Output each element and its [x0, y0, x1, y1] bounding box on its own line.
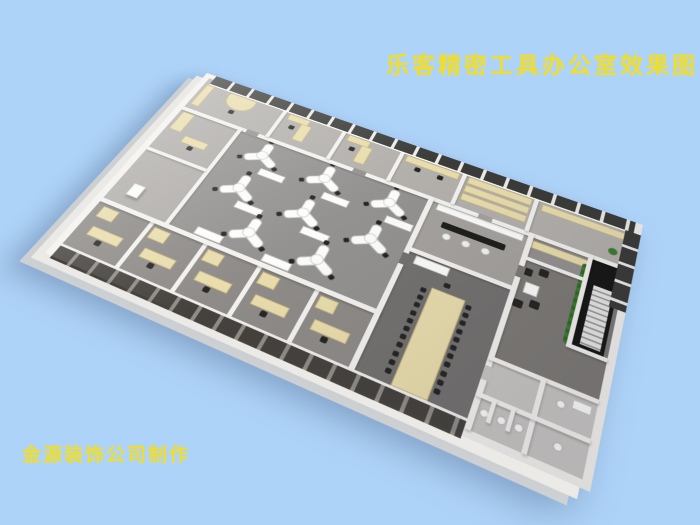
desk-chair: [289, 259, 295, 264]
desk-chair: [221, 232, 227, 237]
desk-chair: [276, 212, 282, 216]
page-title: 乐客精密工具办公室效果图: [386, 46, 698, 80]
desk-chair: [212, 187, 217, 191]
desk-chair: [343, 238, 349, 243]
office-floorplan: [45, 73, 643, 492]
credit-text: 金源装饰公司制作: [22, 440, 190, 467]
desk-chair: [299, 178, 305, 182]
desk-chair: [237, 155, 242, 159]
desk-chair: [363, 202, 369, 206]
render-canvas: 乐客精密工具办公室效果图 金源装饰公司制作: [0, 0, 700, 525]
